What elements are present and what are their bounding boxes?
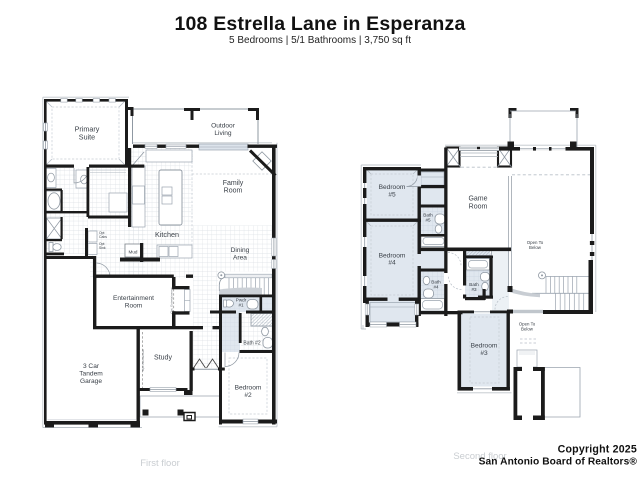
svg-text:Opt. Bonusroom: Opt. Bonusroom (141, 348, 145, 371)
svg-text:Garage: Garage (80, 378, 102, 385)
svg-text:First floor: First floor (140, 458, 180, 469)
svg-text:#5: #5 (425, 218, 431, 223)
svg-text:Below: Below (529, 245, 542, 250)
svg-text:Copyright 2025: Copyright 2025 (558, 444, 637, 456)
svg-text:Bedroom: Bedroom (379, 184, 406, 191)
svg-text:Tandem: Tandem (79, 371, 103, 378)
svg-text:Bedroom: Bedroom (471, 343, 498, 350)
svg-text:Cabs: Cabs (99, 235, 107, 239)
svg-text:Room: Room (125, 303, 143, 310)
svg-text:Kitchen: Kitchen (155, 230, 179, 239)
svg-text:#4: #4 (388, 260, 396, 267)
svg-text:Mud: Mud (129, 250, 138, 255)
svg-text:Room: Room (469, 204, 488, 211)
svg-text:Dining: Dining (231, 247, 250, 254)
svg-text:5 Bedrooms | 5/1 Bathrooms | 3: 5 Bedrooms | 5/1 Bathrooms | 3,750 sq ft (229, 35, 411, 46)
svg-text:3 Car: 3 Car (83, 363, 100, 370)
svg-text:San Antonio Board of Realtors®: San Antonio Board of Realtors® (479, 457, 638, 468)
svg-text:Study: Study (154, 355, 172, 362)
svg-text:Opt. Entertainment: Opt. Entertainment (170, 287, 174, 313)
svg-text:Bedroom: Bedroom (379, 253, 406, 260)
svg-text:#4: #4 (433, 285, 439, 290)
svg-text:Entertainment: Entertainment (113, 295, 154, 302)
svg-text:Room: Room (224, 188, 243, 195)
svg-text:#1: #1 (238, 303, 244, 308)
svg-text:Suite: Suite (79, 133, 95, 142)
svg-text:Outdoor: Outdoor (211, 123, 236, 130)
svg-text:Living: Living (214, 130, 232, 137)
svg-text:Bedroom: Bedroom (235, 385, 262, 392)
svg-text:#5: #5 (388, 192, 396, 199)
svg-text:Sink: Sink (99, 246, 106, 250)
svg-text:Area: Area (233, 255, 247, 262)
svg-text:#3: #3 (480, 350, 488, 357)
svg-text:Below: Below (521, 327, 534, 332)
svg-text:Family: Family (223, 180, 244, 187)
svg-text:Game: Game (468, 196, 487, 203)
svg-text:#3: #3 (471, 287, 477, 292)
svg-text:Bath #2: Bath #2 (243, 341, 260, 347)
svg-text:#2: #2 (244, 392, 252, 399)
svg-text:108 Estrella Lane in Esperanza: 108 Estrella Lane in Esperanza (174, 13, 465, 35)
